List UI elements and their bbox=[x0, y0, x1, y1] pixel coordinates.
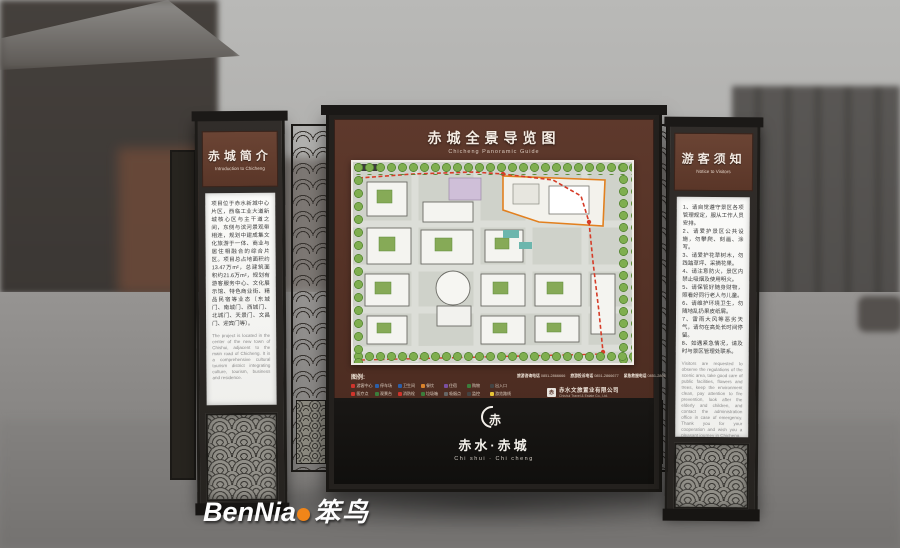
right-panel-header: 游客须知 Notice to Visitors bbox=[674, 133, 753, 192]
legend-item: 购物 bbox=[467, 383, 488, 389]
street-scene: 赤城简介 Introduction to Chicheng 项目位于赤水新城中心… bbox=[0, 0, 900, 548]
site-map-graphic bbox=[353, 162, 634, 365]
right-panel-title-cn: 游客须知 bbox=[682, 150, 746, 167]
legend-item: 吸烟点 bbox=[444, 391, 465, 397]
main-title-en: Chicheng Panoramic Guide bbox=[335, 149, 653, 155]
legend-color-chip bbox=[375, 392, 379, 396]
main-board-black-band: 赤 赤水·赤城 Chi shui · Chi cheng bbox=[334, 398, 654, 484]
left-panel-title-cn: 赤城简介 bbox=[208, 147, 272, 164]
legend-color-chip bbox=[421, 384, 425, 388]
left-info-pillar: 赤城简介 Introduction to Chicheng 项目位于赤水新城中心… bbox=[195, 116, 288, 509]
brand-name-cn: 赤水·赤城 bbox=[458, 435, 529, 454]
watermark-orange-dot-icon bbox=[297, 508, 310, 521]
decorative-strip bbox=[170, 150, 196, 480]
left-panel-title-en: Introduction to Chicheng bbox=[215, 166, 265, 171]
right-panel-body-cn: 1、请自觉遵守景区各项管理规定，服从工作人员安排。 2、请爱护景区公共设施，勿攀… bbox=[682, 204, 744, 356]
right-panel-title-en: Notice to Visitors bbox=[696, 169, 730, 174]
left-panel-body-en: The project is located in the center of … bbox=[212, 333, 270, 381]
map-trees-right bbox=[618, 162, 632, 365]
legend-item: 消防栓 bbox=[398, 391, 419, 397]
legend-color-chip bbox=[421, 392, 425, 396]
brand-name-en: Chi shui · Chi cheng bbox=[454, 456, 534, 462]
wave-pattern-panel bbox=[206, 413, 279, 502]
main-board-brown-face: 赤城全景导览图 Chicheng Panoramic Guide bbox=[334, 119, 654, 405]
panoramic-guide-board: 赤城全景导览图 Chicheng Panoramic Guide bbox=[326, 110, 662, 492]
map-trees-top bbox=[353, 162, 634, 175]
left-panel-text-board: 项目位于赤水新城中心片区，西临工业大道新城核心区与主干道之间，东侧与滨河景观带相… bbox=[205, 193, 276, 405]
legend-item: 卫生间 bbox=[398, 383, 419, 389]
watermark-cn: 笨鸟 bbox=[314, 492, 370, 529]
map-legend: 图例: 游客中心停车场卫生间餐饮住宿购物出入口医疗点观景台消防栓垃圾箱吸烟点监控… bbox=[351, 372, 511, 397]
legend-item: 观景台 bbox=[375, 391, 396, 397]
legend-item: 监控 bbox=[467, 391, 488, 397]
legend-color-chip bbox=[351, 384, 355, 388]
emblem-character: 赤 bbox=[489, 411, 501, 428]
main-board-left-wing bbox=[291, 124, 331, 472]
legend-item: 垃圾箱 bbox=[421, 391, 442, 397]
brand-logo: 赤 赤水·赤城 Chi shui · Chi cheng bbox=[334, 406, 654, 462]
left-panel-body-cn: 项目位于赤水新城中心片区，西临工业大道新城核心区与主干道之间，东侧与滨河景观带相… bbox=[211, 200, 270, 328]
legend-color-chip bbox=[351, 392, 355, 396]
legend-item: 医疗点 bbox=[351, 391, 373, 397]
site-map bbox=[351, 160, 634, 365]
chicheng-emblem-icon: 赤 bbox=[481, 406, 507, 432]
right-panel-text-board: 1、请自觉遵守景区各项管理规定，服从工作人员安排。 2、请爱护景区公共设施，勿攀… bbox=[675, 197, 750, 438]
legend-color-chip bbox=[467, 392, 471, 396]
legend-color-chip bbox=[444, 392, 448, 396]
benniao-watermark: BenNia 笨鸟 bbox=[203, 492, 370, 529]
company-signature: 赤 赤水文旅置业有限公司 Chishui Travel & Estate Co.… bbox=[547, 386, 642, 398]
legend-grid: 游客中心停车场卫生间餐饮住宿购物出入口医疗点观景台消防栓垃圾箱吸烟点监控游览路线 bbox=[351, 383, 511, 397]
main-title: 赤城全景导览图 Chicheng Panoramic Guide bbox=[335, 128, 653, 155]
left-panel-header: 赤城简介 Introduction to Chicheng bbox=[202, 131, 278, 188]
legend-color-chip bbox=[490, 392, 494, 396]
legend-item: 游览路线 bbox=[490, 391, 512, 397]
company-logo-icon: 赤 bbox=[547, 388, 556, 397]
main-title-cn: 赤城全景导览图 bbox=[335, 128, 653, 148]
wave-pattern-panel bbox=[296, 400, 326, 464]
legend-item: 餐饮 bbox=[421, 383, 442, 389]
right-info-pillar: 游客须知 Notice to Visitors 1、请自觉遵守景区各项管理规定，… bbox=[665, 122, 761, 515]
hotline-item: 旅游投诉电话 0851-2866677 bbox=[570, 374, 618, 379]
company-name-cn: 赤水文旅置业有限公司 bbox=[559, 386, 619, 394]
legend-item: 出入口 bbox=[490, 383, 512, 389]
legend-item: 住宿 bbox=[444, 383, 465, 389]
map-trees-left bbox=[353, 162, 363, 365]
legend-color-chip bbox=[375, 384, 379, 388]
legend-color-chip bbox=[444, 384, 448, 388]
legend-color-chip bbox=[467, 384, 471, 388]
right-panel-body-en: Visitors are requested to observe the re… bbox=[681, 361, 743, 437]
main-board-cap bbox=[321, 105, 667, 115]
pillar-cap bbox=[664, 117, 763, 128]
watermark-latin: BenNia bbox=[203, 497, 310, 528]
pillar-cap bbox=[192, 111, 288, 122]
legend-title: 图例: bbox=[351, 372, 511, 381]
legend-color-chip bbox=[490, 384, 494, 388]
parked-car bbox=[858, 296, 900, 332]
map-trees-bottom bbox=[353, 351, 634, 363]
legend-item: 停车场 bbox=[375, 383, 396, 389]
wave-pattern-panel bbox=[674, 443, 749, 510]
legend-color-chip bbox=[398, 392, 402, 396]
hotline-item: 旅游咨询电话 0851-2866666 bbox=[517, 374, 565, 379]
legend-color-chip bbox=[398, 384, 402, 388]
hotline-list: 旅游咨询电话 0851-2866666 旅游投诉电话 0851-2866677 … bbox=[517, 374, 637, 379]
legend-item: 游客中心 bbox=[351, 383, 373, 389]
pillar-base bbox=[663, 509, 760, 522]
